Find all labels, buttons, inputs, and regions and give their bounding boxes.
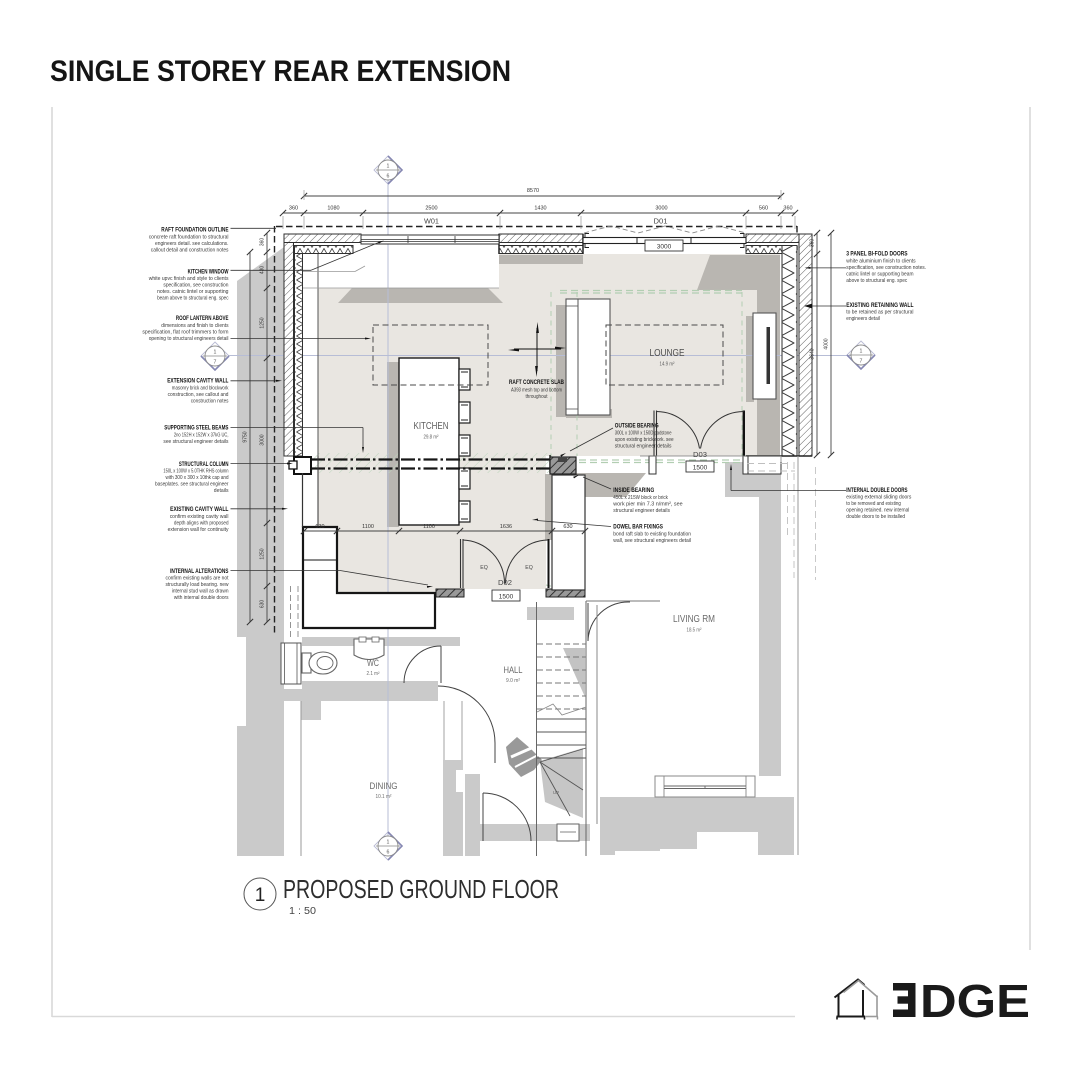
svg-text:1500: 1500 — [693, 465, 708, 472]
svg-text:150L x 100W x 5.0THK RHS colum: 150L x 100W x 5.0THK RHS column — [163, 469, 228, 475]
svg-text:A393 mesh top and bottom: A393 mesh top and bottom — [511, 388, 562, 394]
svg-text:above to structural eng. spec: above to structural eng. spec — [846, 278, 907, 284]
svg-text:2no 152H x 152W x 37kG UC,: 2no 152H x 152W x 37kG UC, — [174, 432, 229, 438]
svg-text:STRUCTURAL COLUMN: STRUCTURAL COLUMN — [179, 461, 229, 468]
svg-text:OUTSIDE BEARING: OUTSIDE BEARING — [615, 423, 659, 430]
svg-text:1: 1 — [214, 350, 217, 356]
svg-text:DINING: DINING — [370, 781, 398, 792]
svg-text:extension wall for continuity: extension wall for continuity — [168, 527, 229, 533]
svg-text:masonry brick and blockwork: masonry brick and blockwork — [172, 385, 229, 391]
svg-text:2500: 2500 — [425, 206, 437, 212]
svg-text:1500: 1500 — [499, 594, 514, 601]
svg-text:engineers detail. see calculat: engineers detail. see calculations. — [155, 241, 229, 247]
svg-text:360: 360 — [260, 238, 266, 247]
svg-text:INSIDE BEARING: INSIDE BEARING — [613, 487, 654, 494]
svg-text:specification, see constructio: specification, see construction notes. — [846, 265, 926, 271]
svg-text:1250: 1250 — [260, 548, 266, 559]
svg-text:7: 7 — [214, 360, 217, 366]
svg-text:double doors to be installed: double doors to be installed — [846, 514, 905, 520]
svg-text:INTERNAL ALTERATIONS: INTERNAL ALTERATIONS — [170, 568, 228, 575]
svg-text:with internal double doors: with internal double doors — [173, 595, 229, 601]
svg-text:confirm existing cavity wall: confirm existing cavity wall — [170, 514, 229, 520]
svg-text:3 PANEL BI-FOLD DOORS: 3 PANEL BI-FOLD DOORS — [846, 251, 907, 258]
svg-text:1: 1 — [387, 164, 390, 170]
svg-text:3000: 3000 — [655, 206, 667, 212]
svg-text:18.5 m²: 18.5 m² — [687, 628, 702, 634]
svg-text:KITCHEN WINDOW: KITCHEN WINDOW — [188, 268, 229, 275]
svg-text:concrete raft foundation to st: concrete raft foundation to structural — [149, 234, 229, 240]
svg-text:1080: 1080 — [327, 206, 339, 212]
svg-text:EQ: EQ — [480, 565, 488, 571]
svg-text:depth aligns with proposed: depth aligns with proposed — [174, 520, 229, 526]
svg-text:specification, flat roof trimm: specification, flat roof trimmers to for… — [142, 329, 228, 335]
svg-text:1 : 50: 1 : 50 — [289, 906, 316, 917]
svg-text:9750: 9750 — [243, 431, 249, 442]
svg-text:360: 360 — [289, 206, 298, 212]
svg-text:6: 6 — [387, 174, 390, 180]
svg-text:450L x 215W block or brick: 450L x 215W block or brick — [613, 495, 668, 501]
svg-text:29.8 m²: 29.8 m² — [424, 435, 439, 441]
svg-text:engineers detail: engineers detail — [846, 316, 880, 322]
svg-text:6: 6 — [387, 850, 390, 856]
svg-text:structural engineer details: structural engineer details — [615, 443, 672, 449]
svg-text:1100: 1100 — [362, 524, 374, 530]
svg-text:with 300 x 300 x 10thk cap and: with 300 x 300 x 10thk cap and — [165, 475, 229, 481]
svg-text:bond raft slab to existing fou: bond raft slab to existing foundation — [613, 532, 691, 538]
svg-text:RAFT CONCRETE SLAB: RAFT CONCRETE SLAB — [509, 379, 564, 386]
svg-text:to be retained as per structur: to be retained as per structural — [846, 310, 913, 316]
svg-text:EXTENSION CAVITY WALL: EXTENSION CAVITY WALL — [167, 378, 228, 385]
svg-text:9.0 m²: 9.0 m² — [506, 678, 520, 684]
svg-text:1: 1 — [387, 840, 390, 846]
svg-text:INTERNAL DOUBLE DOORS: INTERNAL DOUBLE DOORS — [846, 487, 907, 494]
svg-text:EQ: EQ — [525, 565, 533, 571]
svg-text:1100: 1100 — [423, 524, 435, 530]
svg-text:DOWEL BAR FIXINGS: DOWEL BAR FIXINGS — [613, 524, 663, 531]
svg-text:3640: 3640 — [810, 348, 816, 359]
svg-text:SUPPORTING STEEL BEAMS: SUPPORTING STEEL BEAMS — [164, 425, 228, 432]
svg-text:structural engineer details: structural engineer details — [613, 508, 670, 514]
svg-text:1: 1 — [255, 885, 266, 906]
svg-text:630: 630 — [563, 524, 572, 530]
svg-text:internal stud wall as drawn: internal stud wall as drawn — [172, 589, 229, 595]
svg-text:baseplates. see structural eng: baseplates. see structural engineer — [155, 482, 229, 488]
svg-text:1: 1 — [860, 349, 863, 355]
svg-text:D02: D02 — [498, 578, 512, 587]
svg-text:1636: 1636 — [500, 524, 512, 530]
svg-text:300L x 100W x 150D padstone: 300L x 100W x 150D padstone — [615, 430, 672, 436]
svg-text:details: details — [214, 488, 229, 494]
svg-text:SINGLE STOREY REAR EXTENSION: SINGLE STOREY REAR EXTENSION — [50, 55, 511, 88]
svg-text:see structural engineer detail: see structural engineer details — [163, 439, 228, 445]
svg-text:opening to structural engineer: opening to structural engineers detail — [149, 336, 229, 342]
svg-text:upon existing brickwork. see: upon existing brickwork. see — [615, 437, 674, 443]
svg-text:10.1 m²: 10.1 m² — [376, 794, 392, 800]
svg-text:work pier min 7.3 n/mm², see: work pier min 7.3 n/mm², see — [612, 501, 682, 507]
svg-text:630: 630 — [260, 600, 266, 609]
svg-text:white aluminium finish to clie: white aluminium finish to clients — [845, 258, 915, 264]
svg-text:3000: 3000 — [657, 244, 672, 251]
svg-text:KITCHEN: KITCHEN — [414, 421, 449, 432]
svg-text:1430: 1430 — [534, 206, 546, 212]
svg-text:ROOF LANTERN ABOVE: ROOF LANTERN ABOVE — [176, 315, 229, 322]
svg-text:specification, see constructio: specification, see construction — [163, 283, 228, 289]
svg-text:UP: UP — [553, 790, 559, 795]
svg-text:14.9 m²: 14.9 m² — [660, 362, 675, 368]
svg-text:3000: 3000 — [260, 434, 266, 445]
svg-text:D01: D01 — [654, 219, 668, 226]
svg-text:dimensions and finish to clien: dimensions and finish to clients — [161, 323, 228, 329]
svg-text:WC: WC — [367, 658, 379, 668]
svg-text:DGE: DGE — [920, 975, 1030, 1027]
svg-text:PROPOSED GROUND FLOOR: PROPOSED GROUND FLOOR — [283, 876, 559, 904]
svg-text:catnic lintel or supporting be: catnic lintel or supporting beam — [846, 271, 913, 277]
svg-text:existing external sliding door: existing external sliding doors — [846, 495, 911, 501]
svg-text:notes. catnic lintel or suppor: notes. catnic lintel or supporting — [157, 289, 228, 295]
svg-text:1250: 1250 — [260, 317, 266, 328]
svg-text:7: 7 — [860, 359, 863, 365]
svg-text:beam above to structural eng.: beam above to structural eng. spec — [157, 296, 228, 302]
svg-text:EXISTING CAVITY WALL: EXISTING CAVITY WALL — [170, 506, 229, 513]
svg-text:white upvc finish and style to: white upvc finish and style to clients — [148, 276, 229, 282]
svg-text:construction notes: construction notes — [191, 398, 229, 404]
svg-text:EXISTING RETAINING WALL: EXISTING RETAINING WALL — [846, 302, 913, 309]
svg-text:4000: 4000 — [824, 338, 830, 349]
svg-text:LOUNGE: LOUNGE — [650, 347, 685, 359]
svg-text:360: 360 — [810, 239, 816, 248]
svg-text:W01: W01 — [424, 219, 439, 226]
svg-text:confirm existing walls are not: confirm existing walls are not — [166, 576, 229, 582]
svg-text:HALL: HALL — [504, 665, 523, 676]
svg-text:LIVING RM: LIVING RM — [673, 614, 715, 625]
svg-text:560: 560 — [759, 206, 768, 212]
svg-text:430: 430 — [260, 266, 266, 275]
svg-text:8570: 8570 — [527, 188, 539, 194]
svg-text:630: 630 — [315, 524, 324, 530]
svg-text:callout detail and constructio: callout detail and construction notes — [151, 247, 229, 253]
svg-text:to be removed and existing: to be removed and existing — [846, 501, 901, 507]
svg-text:360: 360 — [783, 206, 792, 212]
svg-text:RAFT FOUNDATION OUTLINE: RAFT FOUNDATION OUTLINE — [161, 227, 228, 234]
svg-text:construction, see callout and: construction, see callout and — [168, 392, 229, 398]
svg-text:opening retained. new internal: opening retained. new internal — [846, 508, 909, 514]
svg-text:throughout: throughout — [526, 394, 548, 400]
svg-text:wall, see structural engineers: wall, see structural engineers detail — [612, 538, 691, 544]
svg-text:D03: D03 — [693, 450, 707, 459]
svg-text:structurally load bearing. new: structurally load bearing. new — [166, 582, 230, 588]
svg-text:2.1 m²: 2.1 m² — [367, 671, 380, 677]
